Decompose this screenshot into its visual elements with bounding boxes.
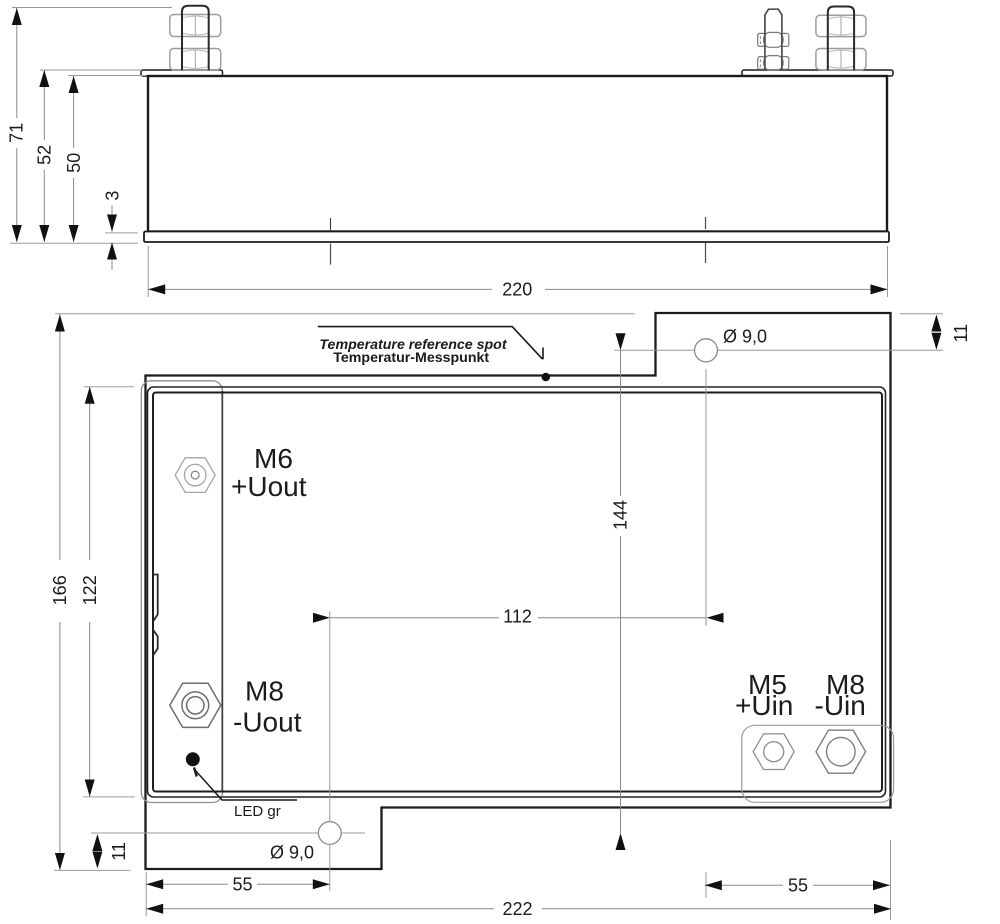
svg-text:71: 71 xyxy=(7,123,27,143)
svg-text:11: 11 xyxy=(951,324,971,343)
svg-text:11: 11 xyxy=(109,842,129,861)
svg-text:220: 220 xyxy=(502,280,532,300)
svg-text:166: 166 xyxy=(50,575,70,605)
svg-text:LED gr: LED gr xyxy=(234,803,281,820)
svg-text:50: 50 xyxy=(64,153,84,173)
svg-text:55: 55 xyxy=(788,875,808,895)
svg-text:Ø 9,0: Ø 9,0 xyxy=(270,843,314,863)
svg-text:55: 55 xyxy=(232,874,252,894)
svg-text:+Uout: +Uout xyxy=(231,471,307,502)
svg-text:Ø 9,0: Ø 9,0 xyxy=(723,327,767,347)
svg-text:144: 144 xyxy=(611,500,631,530)
svg-text:222: 222 xyxy=(502,899,532,919)
svg-text:+Uin: +Uin xyxy=(735,690,793,721)
svg-text:Temperatur-Messpunkt: Temperatur-Messpunkt xyxy=(333,350,489,366)
svg-text:-Uout: -Uout xyxy=(233,707,302,738)
svg-text:M8: M8 xyxy=(245,676,284,707)
svg-text:3: 3 xyxy=(103,191,123,201)
svg-text:-Uin: -Uin xyxy=(815,690,866,721)
svg-text:52: 52 xyxy=(35,145,55,165)
svg-text:122: 122 xyxy=(80,575,100,605)
svg-text:112: 112 xyxy=(503,607,532,627)
svg-text:M6: M6 xyxy=(254,443,293,474)
